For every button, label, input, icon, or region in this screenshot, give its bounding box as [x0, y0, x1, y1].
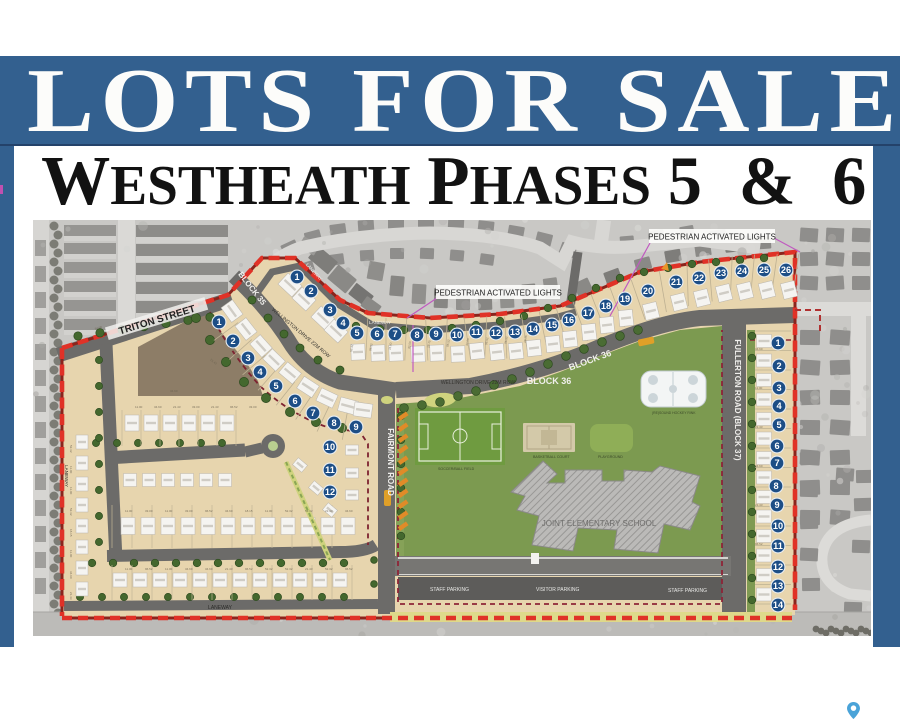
svg-text:LANEWAY: LANEWAY: [64, 465, 69, 487]
svg-text:21.43: 21.43: [325, 509, 333, 513]
svg-text:2: 2: [230, 336, 235, 346]
svg-text:52.32: 52.32: [285, 509, 293, 513]
svg-text:5: 5: [273, 381, 278, 391]
svg-text:JOINT ELEMENTARY SCHOOL: JOINT ELEMENTARY SCHOOL: [542, 519, 657, 528]
svg-text:21.43: 21.43: [173, 405, 181, 409]
svg-text:12: 12: [325, 487, 335, 497]
svg-text:21: 21: [671, 277, 681, 287]
svg-text:34.60: 34.60: [755, 464, 763, 468]
svg-text:11.00: 11.00: [125, 509, 133, 513]
svg-text:12: 12: [773, 562, 783, 572]
svg-text:26: 26: [781, 265, 791, 275]
svg-text:22: 22: [694, 273, 704, 283]
svg-text:33.00: 33.00: [249, 405, 257, 409]
svg-text:33.00: 33.00: [185, 509, 193, 513]
svg-text:96.52: 96.52: [205, 509, 213, 513]
svg-text:8: 8: [331, 418, 336, 428]
svg-text:19: 19: [620, 294, 630, 304]
svg-text:11.00: 11.00: [69, 487, 73, 495]
svg-text:PLAYGROUND: PLAYGROUND: [598, 455, 623, 459]
svg-text:52.32: 52.32: [285, 567, 293, 571]
svg-text:11: 11: [471, 327, 481, 337]
svg-text:9: 9: [433, 329, 438, 339]
svg-text:11.00: 11.00: [265, 509, 273, 513]
svg-text:BASKETBALL COURT: BASKETBALL COURT: [533, 455, 570, 459]
svg-text:34.60: 34.60: [225, 509, 233, 513]
svg-text:21.43: 21.43: [305, 567, 313, 571]
svg-text:STAFF PARKING: STAFF PARKING: [668, 588, 707, 594]
svg-text:34.60: 34.60: [345, 509, 353, 513]
svg-text:96.52: 96.52: [345, 567, 353, 571]
svg-text:8: 8: [414, 330, 419, 340]
svg-text:6: 6: [374, 329, 379, 339]
svg-text:24: 24: [737, 266, 748, 276]
svg-text:VISITOR PARKING: VISITOR PARKING: [536, 587, 580, 593]
svg-text:1: 1: [216, 317, 221, 327]
svg-text:11.00: 11.00: [165, 509, 173, 513]
svg-text:6: 6: [292, 396, 297, 406]
svg-text:21.43: 21.43: [755, 503, 763, 507]
svg-text:9: 9: [774, 500, 779, 510]
svg-text:7: 7: [774, 458, 779, 468]
svg-text:4: 4: [257, 367, 263, 377]
svg-text:52.32: 52.32: [69, 445, 73, 453]
svg-text:11.00: 11.00: [69, 550, 73, 558]
svg-text:1: 1: [775, 338, 780, 348]
svg-text:10: 10: [325, 442, 335, 452]
svg-text:5: 5: [776, 420, 781, 430]
svg-text:STAFF PARKING: STAFF PARKING: [430, 587, 469, 593]
svg-text:3: 3: [245, 353, 250, 363]
svg-text:13: 13: [773, 581, 783, 591]
svg-text:11.00: 11.00: [165, 567, 173, 571]
svg-text:18.15: 18.15: [245, 509, 253, 513]
svg-text:17: 17: [583, 308, 593, 318]
svg-text:96.52: 96.52: [755, 542, 763, 546]
svg-text:11.00: 11.00: [135, 405, 143, 409]
svg-text:96.52: 96.52: [145, 567, 153, 571]
svg-text:LANEWAY: LANEWAY: [208, 605, 233, 611]
svg-text:52.32: 52.32: [69, 508, 73, 516]
svg-text:16: 16: [564, 315, 574, 325]
svg-text:FAIRMONT ROAD: FAIRMONT ROAD: [386, 428, 395, 496]
svg-text:21.43: 21.43: [211, 405, 219, 409]
svg-text:7: 7: [392, 329, 397, 339]
svg-text:11.00: 11.00: [69, 466, 73, 474]
svg-text:3: 3: [327, 305, 332, 315]
svg-text:4: 4: [776, 401, 782, 411]
svg-text:34.60: 34.60: [170, 389, 178, 393]
svg-text:21.43: 21.43: [69, 592, 73, 600]
svg-text:7: 7: [310, 408, 315, 418]
svg-text:14: 14: [528, 324, 539, 334]
svg-text:33.00: 33.00: [192, 405, 200, 409]
svg-text:96.52: 96.52: [230, 405, 238, 409]
svg-text:34.60: 34.60: [154, 405, 162, 409]
svg-text:10: 10: [452, 330, 462, 340]
svg-text:13: 13: [510, 327, 520, 337]
svg-text:23: 23: [716, 268, 726, 278]
svg-text:9: 9: [353, 422, 358, 432]
svg-text:WELLINGTON DRIVE 22M ROW: WELLINGTON DRIVE 22M ROW: [441, 380, 516, 386]
svg-text:5: 5: [354, 328, 359, 338]
svg-text:52.32: 52.32: [325, 567, 333, 571]
svg-text:11.00: 11.00: [755, 386, 763, 390]
svg-text:(RE)SOUND HOCKEY RINK: (RE)SOUND HOCKEY RINK: [652, 411, 696, 415]
svg-text:34.60: 34.60: [185, 567, 193, 571]
svg-text:FULLERTON ROAD (BLOCK 37): FULLERTON ROAD (BLOCK 37): [733, 339, 742, 461]
svg-text:8: 8: [773, 481, 778, 491]
svg-text:25: 25: [759, 265, 769, 275]
svg-text:LANEWAY: LANEWAY: [369, 320, 391, 325]
svg-text:33.00: 33.00: [145, 509, 153, 513]
svg-text:4: 4: [340, 318, 346, 328]
svg-text:2: 2: [776, 361, 781, 371]
svg-text:21.43: 21.43: [755, 425, 763, 429]
svg-text:34.60: 34.60: [205, 567, 213, 571]
svg-text:52.32: 52.32: [305, 509, 313, 513]
svg-text:12: 12: [491, 328, 501, 338]
svg-text:2: 2: [308, 286, 313, 296]
svg-text:34.60: 34.60: [69, 571, 73, 579]
svg-text:6: 6: [774, 441, 779, 451]
svg-text:21.43: 21.43: [225, 567, 233, 571]
svg-text:20: 20: [643, 286, 653, 296]
svg-text:3: 3: [776, 383, 781, 393]
svg-text:SOCCER/BALL FIELD: SOCCER/BALL FIELD: [438, 467, 475, 471]
svg-text:PEDESTRIAN ACTIVATED LIGHTS: PEDESTRIAN ACTIVATED LIGHTS: [434, 289, 562, 298]
svg-text:11.00: 11.00: [125, 567, 133, 571]
svg-text:18: 18: [601, 301, 611, 311]
svg-text:15: 15: [547, 320, 557, 330]
svg-text:PEDESTRIAN ACTIVATED LIGHTS: PEDESTRIAN ACTIVATED LIGHTS: [648, 233, 776, 242]
svg-text:96.52: 96.52: [245, 567, 253, 571]
svg-text:BLOCK 36: BLOCK 36: [527, 376, 572, 386]
svg-text:34.60: 34.60: [755, 347, 763, 351]
svg-text:18.15: 18.15: [69, 529, 73, 537]
svg-text:1: 1: [294, 272, 299, 282]
svg-text:11: 11: [325, 465, 335, 475]
svg-text:52.32: 52.32: [265, 567, 273, 571]
svg-text:10: 10: [773, 521, 783, 531]
svg-text:11: 11: [773, 541, 783, 551]
svg-text:14: 14: [773, 600, 784, 610]
